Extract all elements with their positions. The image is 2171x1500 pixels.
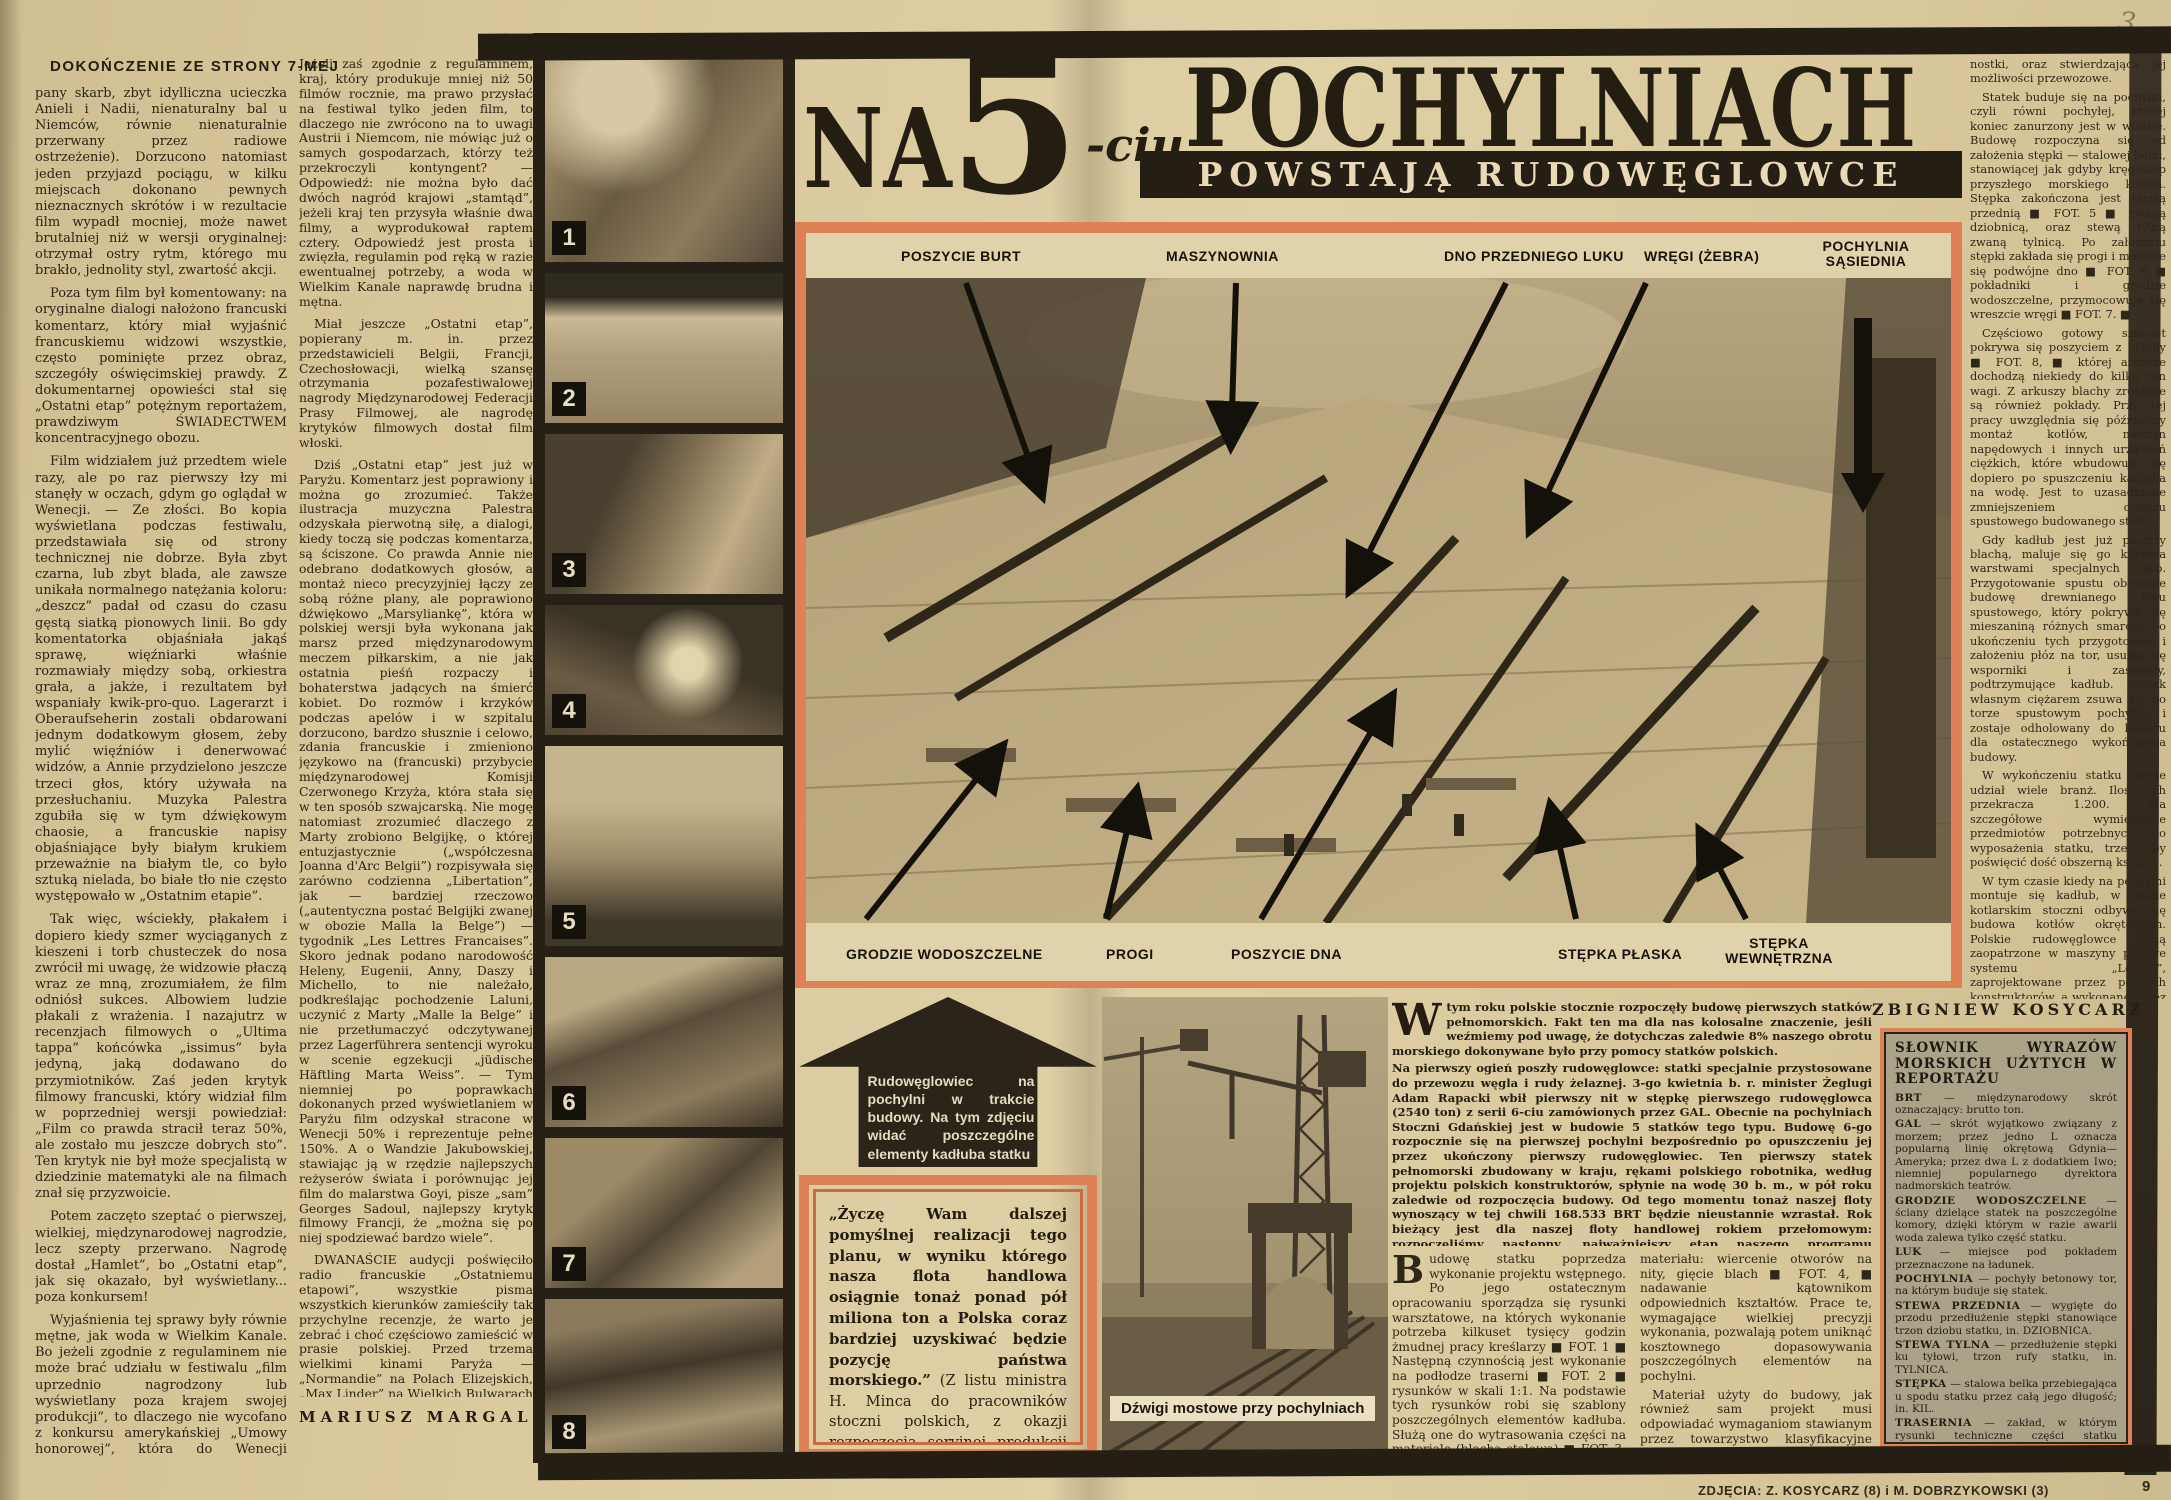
author-signature-kosycarz: ZBIGNIEW KOSYCARZ	[1872, 1000, 2122, 1019]
strip-photo-tracing-loft: 2	[545, 273, 783, 423]
photo-number-badge: 2	[552, 382, 586, 416]
label-grodzie-wodoszczelne: GRODZIE WODOSZCZELNE	[846, 946, 1043, 962]
headline-na: NA	[803, 84, 952, 213]
left-article-column-1: pany skarb, zbyt idylliczna ucieczka Ani…	[35, 86, 287, 1456]
glossary-entry: STEWA PRZEDNIA — wygięte do przodu przed…	[1895, 1300, 2117, 1337]
label-pochylnia-sasiednia: POCHYLNIA SĄSIEDNIA	[1806, 239, 1926, 270]
paragraph: W wykończeniu statku bierze udział wiele…	[1970, 768, 2166, 869]
glossary-entry: LUK — miejsce pod pokładem przeznaczone …	[1895, 1246, 2117, 1271]
main-photo-frame: POSZYCIE BURT MASZYNOWNIA DNO PRZEDNIEGO…	[795, 222, 1962, 988]
paragraph: Potem zaczęto szeptać o pierwszej, wielk…	[35, 1209, 287, 1306]
glossary-entry: POCHYLNIA — pochyły betonowy tor, na któ…	[1895, 1273, 2117, 1298]
quote-text: „Życzę Wam dalszej pomyślnej realizacji …	[829, 1205, 1067, 1389]
headline-subtitle: POWSTAJĄ RUDOWĘGLOWCE	[1140, 151, 1962, 198]
strip-photo-shipyard: 7	[545, 1138, 783, 1288]
author-signature-margal: MARIUSZ MARGAL	[299, 1408, 533, 1426]
photo-number-badge: 5	[552, 905, 586, 939]
label-poszycie-dna: POSZYCIE DNA	[1231, 946, 1342, 962]
headline-five: 5	[948, 14, 1080, 237]
label-wregi-zebra: WRĘGI (ŻEBRA)	[1644, 248, 1759, 264]
crane-photo-caption: Dźwigi mostowe przy pochylniach	[1110, 1396, 1375, 1421]
label-dno-przedniego-luku: DNO PRZEDNIEGO LUKU	[1444, 248, 1624, 264]
photo-number-badge: 6	[552, 1086, 586, 1120]
paragraph: Na pierwszy ogień poszły rudowęglowce: s…	[1392, 1061, 1872, 1246]
paragraph: Częściowo gotowy szkielet pokrywa się po…	[1970, 326, 2166, 529]
paragraph: Statek buduje się na pochylni, czyli rów…	[1970, 90, 2166, 322]
glossary-entry: TRASERNIA — zakład, w którym rysunki tec…	[1895, 1417, 2117, 1444]
paragraph: Miał jeszcze „Ostatni etap”, popierany m…	[299, 317, 533, 451]
paragraph: DWANAŚCIE audycji poświęciło radio franc…	[299, 1253, 533, 1397]
paragraph: Budowę statku poprzedza wykonanie projek…	[1392, 1252, 1626, 1458]
paragraph: materiału: wiercenie otworów na nity, gi…	[1640, 1252, 1872, 1384]
right-article-column: nostki, oraz stwierdzająca jej możliwośc…	[1970, 57, 2166, 999]
arrow-caption-text: Rudowęglowiec na pochylni w trakcie budo…	[868, 1072, 1035, 1163]
subtitle-band: POWSTAJĄ RUDOWĘGLOWCE	[1140, 151, 1962, 198]
glossary-title: SŁOWNIK WYRAZÓW MORSKICH UŻYTYCH W REPOR…	[1895, 1041, 2117, 1088]
paragraph: Film widziałem już przedtem wiele razy, …	[35, 454, 287, 905]
label-poszycie-burt: POSZYCIE BURT	[901, 248, 1021, 264]
paragraph: W tym czasie kiedy na pochylni montuje s…	[1970, 874, 2166, 999]
glossary-entry: STEWA TYLNA — przedłużenie stępki ku tył…	[1895, 1339, 2117, 1376]
photo-credit: ZDJĘCIA: Z. KOSYCARZ (8) i M. DOBRZYKOWS…	[1698, 1483, 2049, 1498]
paragraph: Poza tym film był komentowany: na orygin…	[35, 286, 287, 447]
glossary-entry: GAL — skrót wyjątkowo związany z morzem;…	[1895, 1118, 2117, 1192]
strip-photo-welder: 3	[545, 434, 783, 594]
bottom-article-lead: W tym roku polskie stocznie rozpoczęły b…	[1392, 1000, 1872, 1246]
glossary-entry: STĘPKA — stalowa belka przebiegająca u s…	[1895, 1378, 2117, 1415]
paragraph: Dziś „Ostatni etap” jest już w Paryżu. K…	[299, 458, 533, 1246]
paragraph: Gdy kadłub jest już poszyty blachą, malu…	[1970, 533, 2166, 765]
photo-number-badge: 1	[552, 221, 586, 255]
left-page-edge	[0, 0, 22, 1500]
strip-photo-deck: 8	[545, 1299, 783, 1456]
photo-strip: 1 2 3 4 5 6 7 8	[533, 33, 795, 1463]
photo-labels-bottom: GRODZIE WODOSZCZELNE PROGI POSZYCIE DNA …	[806, 927, 1951, 981]
bottom-article-column-2: materiału: wiercenie otworów na nity, gi…	[1640, 1252, 1872, 1458]
glossary-entry: GRODZIE WODOSZCZELNE — ściany dzielące s…	[1895, 1195, 2117, 1245]
paragraph: nostki, oraz stwierdzająca jej możliwośc…	[1970, 57, 2166, 86]
magazine-spread: 3 DOKOŃCZENIE ZE STRONY 7-MEJ pany skarb…	[0, 0, 2171, 1500]
photo-number-badge: 3	[552, 553, 586, 587]
strip-photo-plate-work: 4	[545, 605, 783, 735]
left-article-column-2: Jeżeli zaś zgodnie z regulaminem, kraj, …	[299, 57, 533, 1397]
maritime-glossary-box: SŁOWNIK WYRAZÓW MORSKICH UŻYTYCH W REPOR…	[1880, 1028, 2132, 1448]
photo-number-badge: 4	[552, 694, 586, 728]
bottom-article-column-1: Budowę statku poprzedza wykonanie projek…	[1392, 1252, 1626, 1458]
photo-labels-top: POSZYCIE BURT MASZYNOWNIA DNO PRZEDNIEGO…	[806, 233, 1951, 278]
paragraph: pany skarb, zbyt idylliczna ucieczka Ani…	[35, 86, 287, 279]
page-number: 9	[2142, 1478, 2151, 1495]
photo-number-badge: 7	[552, 1247, 586, 1281]
label-progi: PROGI	[1106, 946, 1154, 962]
paragraph: Tak więc, wściekły, płakałem i dopiero k…	[35, 912, 287, 1202]
paragraph: W tym roku polskie stocznie rozpoczęły b…	[1392, 1000, 1872, 1058]
strip-photo-launch-crowd: 5	[545, 746, 783, 946]
photo-number-badge: 8	[552, 1415, 586, 1449]
label-stepka-plaska: STĘPKA PŁASKA	[1558, 946, 1682, 962]
shipyard-slipway-photo	[806, 278, 1951, 923]
paragraph: Wyjaśnienia tej sprawy były równie mętne…	[35, 1313, 287, 1456]
minister-quote-box: „Życzę Wam dalszej pomyślnej realizacji …	[799, 1175, 1097, 1459]
glossary-entry: BRT — międzynarodowy skrót oznaczający: …	[1895, 1092, 2117, 1117]
paragraph: Jeżeli zaś zgodnie z regulaminem, kraj, …	[299, 57, 533, 310]
label-stepka-wewnetrzna: STĘPKA WEWNĘTRZNA	[1714, 936, 1844, 967]
strip-photo-draftsman: 1	[545, 47, 783, 262]
label-maszynownia: MASZYNOWNIA	[1166, 248, 1279, 264]
strip-photo-hull: 6	[545, 957, 783, 1127]
crane-photo	[1102, 997, 1388, 1459]
